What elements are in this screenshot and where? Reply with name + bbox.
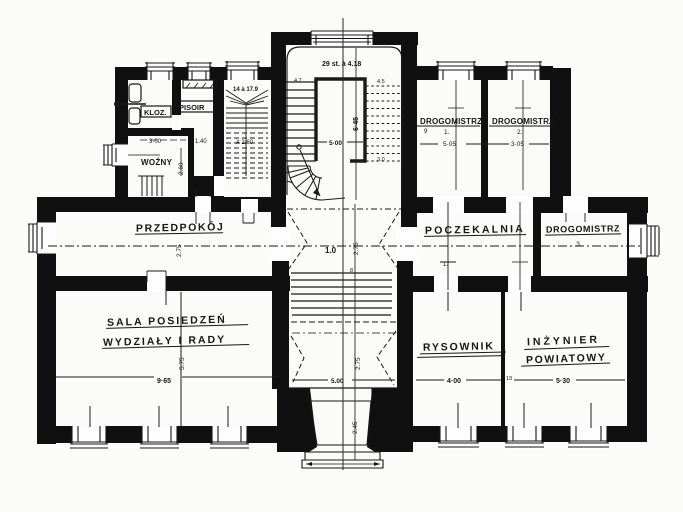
svg-text:8: 8 <box>350 268 353 274</box>
svg-text:INŻYNIER: INŻYNIER <box>527 333 600 349</box>
svg-text:5.75: 5.75 <box>179 357 186 370</box>
svg-text:5.00: 5.00 <box>331 378 344 385</box>
svg-text:6·45: 6·45 <box>353 117 360 131</box>
svg-text:PISOIR: PISOIR <box>179 103 205 112</box>
svg-text:4.7: 4.7 <box>294 78 302 84</box>
svg-text:KLOZ.: KLOZ. <box>144 108 167 117</box>
svg-text:A 2.60: A 2.60 <box>236 140 254 146</box>
svg-text:5·00: 5·00 <box>329 140 342 147</box>
svg-text:13: 13 <box>506 376 512 382</box>
svg-text:3·00: 3·00 <box>149 139 162 145</box>
svg-text:2.75: 2.75 <box>355 357 362 370</box>
svg-text:2.45: 2.45 <box>352 421 359 434</box>
svg-text:1.40: 1.40 <box>195 139 207 145</box>
svg-text:DROGOMISTRZ: DROGOMISTRZ <box>546 223 620 234</box>
svg-text:1.: 1. <box>443 262 448 268</box>
svg-text:5·05: 5·05 <box>443 141 456 148</box>
svg-text:2.75: 2.75 <box>353 242 360 255</box>
svg-text:3·05: 3·05 <box>511 141 524 148</box>
svg-text:2.: 2. <box>517 129 523 136</box>
svg-text:3.: 3. <box>576 241 582 248</box>
svg-text:14 à 17.9: 14 à 17.9 <box>233 87 259 93</box>
svg-text:1.: 1. <box>444 129 450 136</box>
svg-text:4.5: 4.5 <box>377 79 385 85</box>
svg-text:WOŹNY: WOŹNY <box>141 158 173 167</box>
svg-text:2.60: 2.60 <box>178 162 185 175</box>
svg-text:DROGOMISTRZ: DROGOMISTRZ <box>492 117 554 126</box>
svg-text:4·00: 4·00 <box>447 378 461 385</box>
svg-text:3.0: 3.0 <box>377 157 385 163</box>
svg-text:2.75: 2.75 <box>176 244 183 257</box>
svg-text:RYSOWNIK: RYSOWNIK <box>423 340 495 354</box>
svg-text:1.0: 1.0 <box>325 246 337 255</box>
svg-text:9·65: 9·65 <box>157 378 171 385</box>
svg-text:5·30: 5·30 <box>556 378 570 385</box>
svg-text:DROGOMISTRZ: DROGOMISTRZ <box>420 117 482 126</box>
svg-text:29 st. à 4.18: 29 st. à 4.18 <box>322 61 361 68</box>
